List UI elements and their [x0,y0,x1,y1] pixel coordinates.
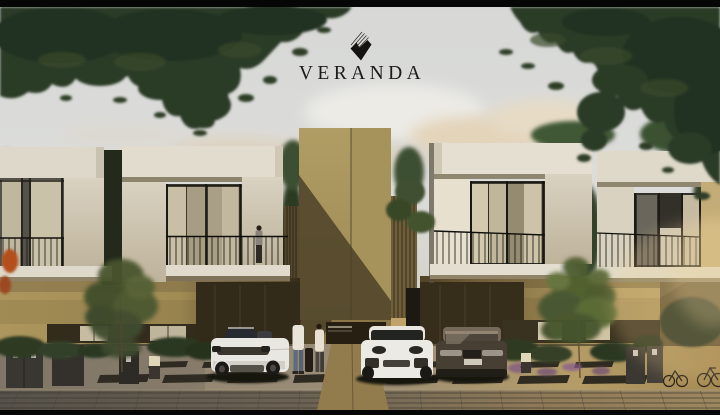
svg-text:VERANDA: VERANDA [299,63,425,84]
